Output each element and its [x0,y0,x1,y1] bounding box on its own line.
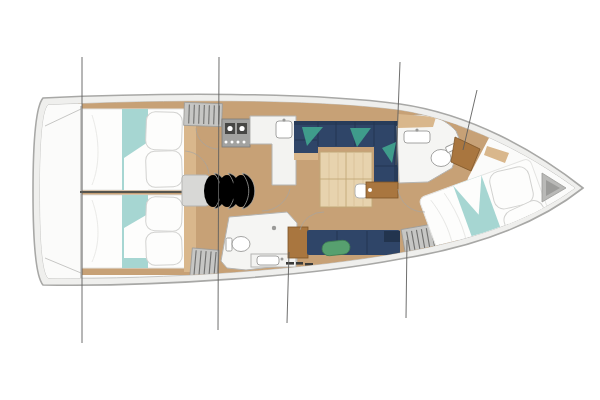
stove-burner-right-ring [239,126,244,131]
salon-chairs [204,173,255,209]
galley-faucet [282,118,285,121]
galley-sink [276,121,292,138]
starboard-cabinet [288,227,308,258]
forward-head-sink [404,131,430,143]
aft-head-toilet-bowl [232,237,250,252]
aft-head-shower [272,226,276,230]
bench-end-block [384,231,400,242]
floor-plan-canvas [0,0,600,400]
aft-head-faucet [281,258,284,261]
yacht-deck-plan [0,0,600,400]
bench-green-cushion [321,240,350,257]
aft-bed-starboard-pillow-1 [145,196,182,231]
aft-cabin-port [82,109,186,190]
stove-knob-3 [237,141,240,144]
stove-knob-4 [243,141,246,144]
forward-head-faucet [415,128,418,131]
salon-cabinet-knob [368,188,372,192]
aft-cabin-starboard [82,195,186,268]
aft-bed-port-pillow-2 [145,150,182,187]
sofa-left-arm-trim [294,153,318,160]
stove-knob-1 [225,141,228,144]
aft-bed-port-pillow-1 [145,111,182,150]
stove-knob-2 [231,141,234,144]
starboard-bench [307,230,400,256]
sofa-backrest-top [294,121,398,125]
aft-head-toilet-tank [226,238,232,251]
stove-burner-left-ring [227,126,232,131]
aft-bed-starboard-pillow-2 [145,231,182,265]
aft-head-sink [257,256,279,265]
